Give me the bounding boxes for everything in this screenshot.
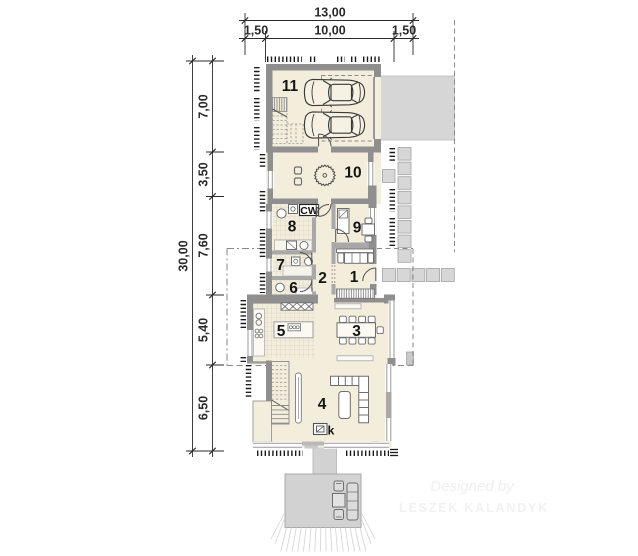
svg-text:30,00: 30,00 xyxy=(177,240,191,271)
svg-text:1: 1 xyxy=(350,269,359,286)
svg-text:3,50: 3,50 xyxy=(197,162,211,186)
svg-text:11: 11 xyxy=(282,78,299,95)
svg-text:2: 2 xyxy=(318,270,327,287)
svg-text:5: 5 xyxy=(277,323,286,340)
svg-text:13,00: 13,00 xyxy=(314,6,345,20)
svg-text:9: 9 xyxy=(353,220,362,237)
svg-text:7,00: 7,00 xyxy=(197,94,211,118)
svg-text:7: 7 xyxy=(276,257,285,274)
svg-text:6: 6 xyxy=(289,280,298,297)
svg-text:LESZEK KALANDYK: LESZEK KALANDYK xyxy=(399,501,549,515)
svg-text:10,00: 10,00 xyxy=(314,24,345,38)
svg-text:7,60: 7,60 xyxy=(197,233,211,257)
svg-text:1,50: 1,50 xyxy=(392,24,416,38)
svg-text:k: k xyxy=(328,424,335,438)
svg-text:5,40: 5,40 xyxy=(197,318,211,342)
svg-text:CW: CW xyxy=(300,205,318,217)
svg-text:8: 8 xyxy=(288,219,297,236)
svg-text:1,50: 1,50 xyxy=(244,24,268,38)
svg-text:10: 10 xyxy=(344,165,361,182)
svg-text:3: 3 xyxy=(352,323,361,340)
svg-text:4: 4 xyxy=(318,396,327,413)
svg-text:Designed by: Designed by xyxy=(430,478,515,495)
svg-text:6,50: 6,50 xyxy=(197,396,211,420)
